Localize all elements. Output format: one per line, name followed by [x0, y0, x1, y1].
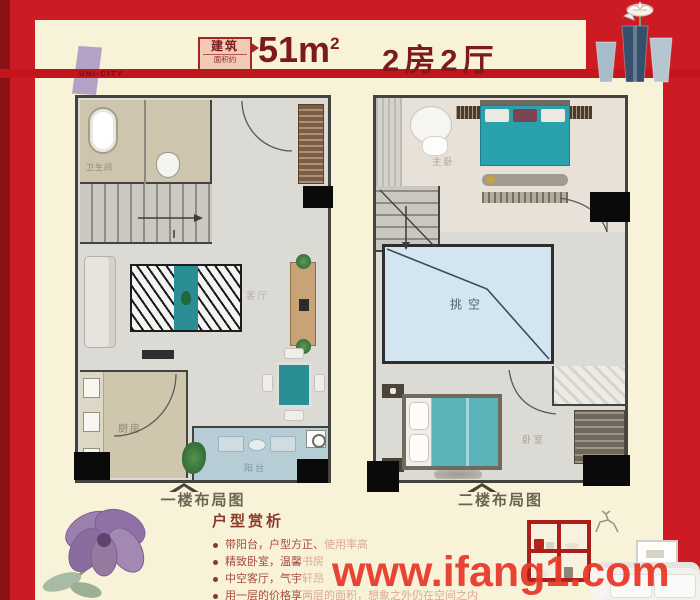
deer-figurine-icon	[592, 510, 622, 534]
shelf-cell	[531, 524, 557, 549]
caption-text: 二楼布局图	[458, 492, 543, 509]
second-floor-caption: 二楼布局图	[373, 489, 628, 510]
blanket-fold	[466, 398, 469, 466]
stairs-second-floor	[376, 186, 440, 252]
kitchen-label: 厨房	[118, 420, 142, 435]
bullet-text-faded: 书房	[302, 556, 324, 568]
living-room-label: 客厅	[246, 288, 269, 302]
bullet-dot	[213, 594, 218, 599]
chair-icon	[422, 136, 448, 156]
washing-machine-icon	[306, 430, 326, 448]
shelf-cell	[561, 524, 587, 549]
entry-closet	[552, 366, 625, 406]
balcony-label: 阳台	[244, 461, 266, 474]
black-marker	[583, 455, 630, 486]
bed-bench	[482, 174, 568, 186]
tv-console	[290, 262, 316, 346]
wardrobe-curtain	[376, 98, 402, 186]
chair-icon	[262, 374, 273, 392]
bullet-dot	[213, 543, 218, 548]
area-superscript: 2	[330, 34, 339, 53]
bullet-dot	[213, 560, 218, 565]
black-marker	[74, 452, 110, 480]
flower-decoration	[28, 498, 178, 600]
tv-stand	[142, 350, 174, 359]
stove-icon	[83, 412, 100, 432]
bathroom-divider-wall	[144, 100, 146, 184]
master-bed-icon	[480, 105, 570, 166]
area-value: 51m2	[258, 29, 340, 71]
sofa-icon	[84, 256, 116, 348]
left-border-strip	[0, 0, 10, 600]
pillows	[406, 398, 432, 466]
analysis-title: 户型赏析	[212, 510, 512, 531]
first-floor-plan: 卫生间 客厅 厨房	[75, 95, 331, 483]
void-area: 挑空	[382, 244, 554, 364]
chair-icon	[284, 410, 304, 421]
dining-set	[262, 348, 328, 424]
bathroom-label: 卫生间	[86, 162, 113, 173]
stamp-line1: 建筑	[200, 39, 250, 54]
bedroom-label: 卧室	[522, 432, 545, 446]
toilet-icon	[156, 152, 180, 178]
sink-icon	[83, 378, 100, 398]
black-marker	[297, 459, 328, 483]
bullet-text: 精致卧室，温馨	[225, 556, 302, 568]
bullet-text: 带阳台，户型方正、	[225, 539, 324, 551]
second-floor-plan: 主卧 挑空 卧室	[373, 95, 628, 483]
stamp-line2: 面积约	[203, 54, 247, 65]
master-bedroom-label: 主卧	[432, 154, 455, 168]
brand-name: UNI-CITY	[79, 69, 124, 78]
black-marker	[367, 461, 399, 492]
balcony-seat	[218, 436, 244, 452]
area-number: 51m	[258, 29, 330, 70]
balcony-table	[248, 439, 266, 451]
ad-canvas: UNI-CITY 建筑 面积约 51m2 2房2厅 卫生间	[0, 0, 700, 600]
bathroom-area: 卫生间	[80, 100, 212, 184]
first-floor-caption: 一楼布局图	[75, 489, 331, 510]
chair-icon	[284, 348, 304, 359]
shoe-cabinet	[298, 104, 324, 184]
void-label: 挑空	[385, 296, 551, 313]
balcony-seat	[270, 436, 296, 452]
plant-icon	[296, 254, 311, 269]
watermark-text: www.ifang1.com	[332, 548, 670, 597]
flower-petals	[60, 502, 151, 578]
area-stamp: 建筑 面积约	[198, 37, 252, 71]
bullet-text: 用一层的价格享	[225, 590, 302, 600]
chair-icon	[314, 374, 325, 392]
bed-foot-clutter	[434, 470, 482, 479]
dining-table-icon	[276, 362, 312, 408]
coffee-table-plant	[181, 291, 191, 305]
balcony-plant-icon	[182, 442, 206, 474]
black-marker	[590, 192, 630, 222]
caption-text: 一楼布局图	[160, 492, 245, 509]
medium-vase-icon	[650, 38, 672, 82]
pillow-icon	[513, 109, 537, 122]
pillow-icon	[485, 109, 509, 122]
bullet-text-faded: 轩昂	[302, 573, 324, 585]
lotus-flower-icon	[624, 2, 653, 26]
black-marker	[303, 186, 333, 208]
bedside-rug	[456, 106, 480, 119]
bullet-dot	[213, 577, 218, 582]
vases-decoration	[588, 0, 680, 84]
layout-type: 2房2厅	[382, 35, 498, 80]
pillow-icon	[541, 109, 565, 122]
bedroom-bed-icon	[402, 394, 502, 470]
bedside-rug	[568, 106, 592, 119]
bullet-text: 中空客厅，气宇	[225, 573, 302, 585]
bathtub-icon	[88, 107, 118, 154]
zebra-rug	[130, 264, 242, 332]
stairs-first-floor	[80, 184, 212, 244]
foot-rug	[482, 192, 568, 203]
small-vase-icon	[596, 42, 616, 82]
nightstand-icon	[382, 384, 404, 398]
tv-icon	[299, 299, 309, 311]
